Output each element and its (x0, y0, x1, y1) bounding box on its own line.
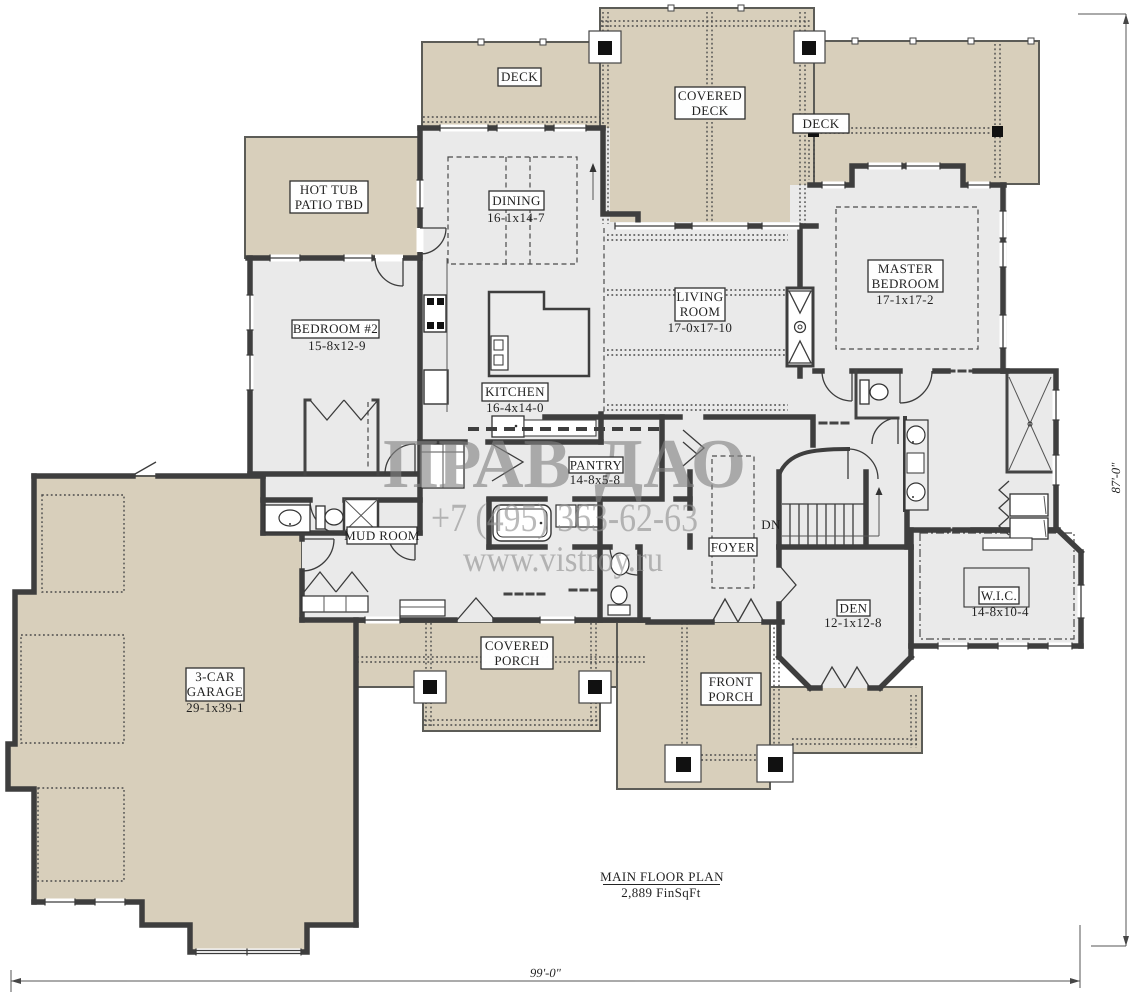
svg-text:99'-0": 99'-0" (530, 966, 562, 980)
svg-text:www.vistroy.ru: www.vistroy.ru (463, 539, 663, 579)
svg-text:MUD ROOM: MUD ROOM (344, 528, 420, 543)
svg-text:PORCH: PORCH (708, 689, 753, 704)
svg-text:HOT TUB: HOT TUB (300, 182, 358, 197)
svg-text:DECK: DECK (501, 69, 538, 84)
svg-text:DECK: DECK (803, 116, 840, 131)
svg-text:ПРАВ-ДАО: ПРАВ-ДАО (383, 426, 746, 503)
svg-text:DN: DN (761, 517, 781, 532)
svg-text:DINING: DINING (492, 193, 541, 208)
svg-text:KITCHEN: KITCHEN (485, 384, 545, 399)
svg-text:MASTER: MASTER (878, 261, 933, 276)
svg-text:COVERED: COVERED (678, 88, 742, 103)
svg-text:17-0x17-10: 17-0x17-10 (668, 320, 733, 335)
svg-text:FOYER: FOYER (711, 540, 756, 555)
svg-text:+7 (495) 363-62-63: +7 (495) 363-62-63 (431, 495, 698, 540)
svg-text:15-8x12-9: 15-8x12-9 (308, 338, 366, 353)
svg-text:29-1x39-1: 29-1x39-1 (186, 700, 244, 715)
svg-text:ROOM: ROOM (680, 304, 721, 319)
svg-text:PORCH: PORCH (494, 653, 539, 668)
svg-text:3-CAR: 3-CAR (195, 669, 235, 684)
svg-text:14-8x10-4: 14-8x10-4 (971, 604, 1029, 619)
svg-text:16-1x14-7: 16-1x14-7 (487, 210, 545, 225)
svg-text:MAIN FLOOR PLAN: MAIN FLOOR PLAN (600, 869, 724, 884)
svg-text:12-1x12-8: 12-1x12-8 (824, 615, 882, 630)
svg-text:87'-0": 87'-0" (1109, 462, 1123, 494)
svg-text:DECK: DECK (692, 103, 729, 118)
svg-text:FRONT: FRONT (709, 674, 754, 689)
svg-text:17-1x17-2: 17-1x17-2 (876, 292, 934, 307)
svg-text:PANTRY: PANTRY (570, 458, 623, 473)
svg-text:COVERED: COVERED (485, 638, 549, 653)
svg-text:16-4x14-0: 16-4x14-0 (486, 400, 544, 415)
svg-text:DEN: DEN (840, 601, 868, 616)
svg-text:BEDROOM #2: BEDROOM #2 (293, 321, 378, 336)
svg-text:W.I.C.: W.I.C. (981, 588, 1017, 603)
svg-text:GARAGE: GARAGE (187, 684, 244, 699)
svg-text:LIVING: LIVING (676, 289, 723, 304)
svg-text:2,889 FinSqFt: 2,889 FinSqFt (621, 885, 701, 900)
svg-text:PATIO TBD: PATIO TBD (295, 197, 363, 212)
svg-text:BEDROOM: BEDROOM (872, 276, 940, 291)
svg-text:14-8x5-8: 14-8x5-8 (570, 472, 621, 487)
